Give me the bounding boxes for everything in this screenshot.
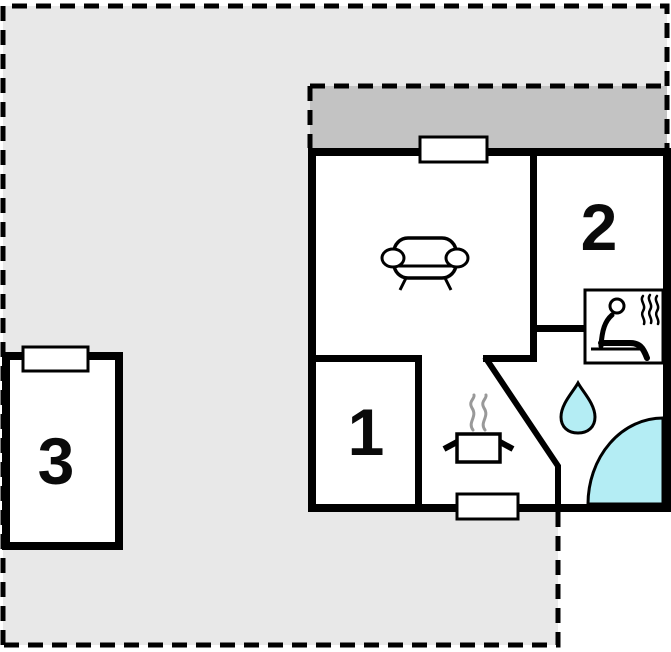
window-top-wall <box>420 137 487 162</box>
floor-plan-svg: 1 2 3 <box>0 0 671 652</box>
room-3-label: 3 <box>38 424 75 498</box>
sofa-armrest-right <box>446 249 468 267</box>
wall-room2-bottom <box>530 325 587 332</box>
wall-room1-right <box>415 355 422 504</box>
wall-room1-top <box>308 355 422 362</box>
sauna-room <box>585 290 663 363</box>
sauna-person-head <box>610 299 624 313</box>
door-bottom-wall <box>457 494 518 519</box>
room-2-label: 2 <box>581 190 618 264</box>
sofa-armrest-left <box>382 249 404 267</box>
room-1-label: 1 <box>348 395 385 469</box>
floor-plan: 1 2 3 <box>0 0 671 652</box>
annex-window <box>23 347 88 371</box>
pot-body <box>457 434 500 462</box>
